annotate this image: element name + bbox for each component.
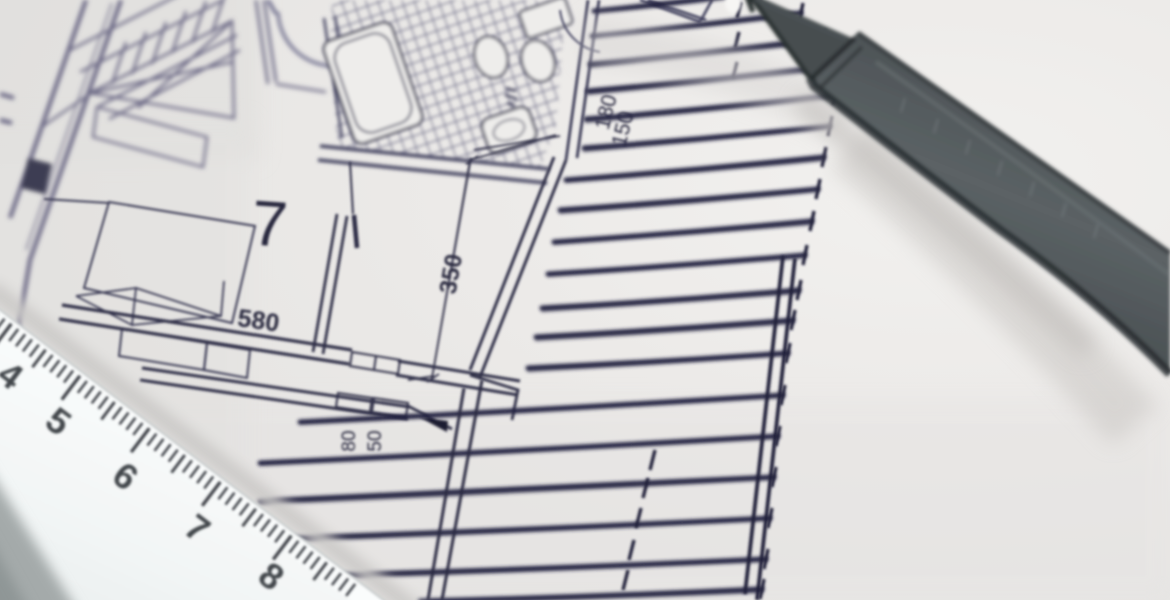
svg-text:7: 7 — [249, 186, 290, 260]
svg-text:580: 580 — [236, 304, 281, 338]
svg-text:80: 80 — [339, 430, 360, 451]
svg-text:50: 50 — [365, 430, 386, 451]
